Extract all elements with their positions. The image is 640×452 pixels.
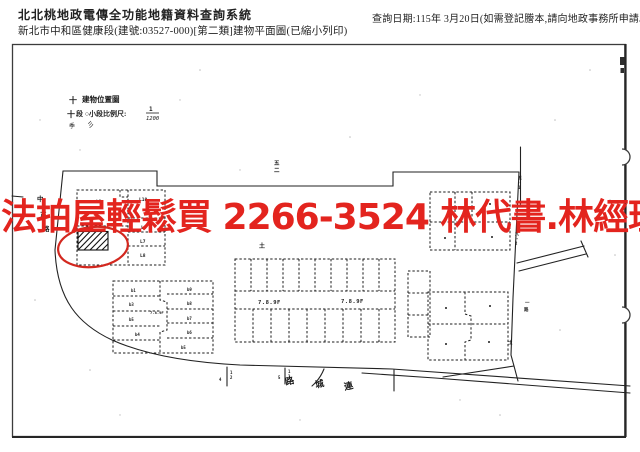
unit-label: b7	[187, 316, 192, 321]
unit-label: b3	[129, 302, 134, 307]
scale-denominator: 1200	[146, 116, 160, 122]
tiny-annotations: 五 二 土 五 - 1 九 - 2 一 路 土 1 2 4 1 2 5	[219, 160, 530, 382]
scale-numerator: 1	[149, 106, 153, 113]
punch-hole-icon	[622, 149, 630, 165]
floor-label: 7.8.9F	[258, 300, 281, 306]
pen-mark: 季	[69, 122, 75, 130]
unit-label: b5	[181, 345, 186, 350]
lane-name: 路	[524, 306, 529, 313]
unit-label: b1	[131, 288, 136, 293]
lot-number: 2	[230, 375, 233, 380]
lot-number: 5	[278, 375, 281, 380]
parcel-boundary	[12, 147, 630, 393]
road-name-char: 城	[314, 377, 325, 390]
watermark-ad-text: 法拍屋輕鬆買 2266-3524 林代書.林經理	[1, 198, 640, 238]
lot-number: 2	[515, 241, 518, 246]
lot-mark: 土	[508, 339, 513, 346]
floor-label: 7.8.9F	[150, 310, 164, 315]
lot-mark: 土	[259, 242, 265, 250]
building-cluster-left-bottom	[113, 281, 213, 353]
unit-label: b4	[135, 332, 140, 337]
pen-mark: 十	[69, 95, 77, 105]
registry-printout-page: 北北桃地政電傳全功能地籍資料查詢系統 新北市中和區健康段(建號:03527-00…	[0, 0, 640, 452]
bottom-left-unit-labels: b1 b3 b5 b4 b9 b8 b7 b6 b5 7.8.9F	[129, 287, 192, 350]
unit-label: b8	[187, 301, 192, 306]
unit-label: b5	[129, 317, 134, 322]
scale-label: 段 ○小段比例尺:	[76, 109, 126, 118]
lot-number: 4	[219, 377, 222, 382]
pen-mark: 彡	[86, 120, 95, 130]
pen-mark: 十	[67, 109, 75, 119]
building-strip-mid	[408, 271, 430, 337]
unit-label: L7	[140, 239, 146, 245]
lane-name: 一	[525, 300, 530, 305]
road-name-char: 路	[284, 374, 296, 387]
unit-label: b9	[187, 287, 192, 292]
location-map-title: 建物位置圖	[81, 94, 120, 104]
road-name-char: 連	[343, 379, 355, 392]
building-cluster-right-bottom	[428, 292, 508, 360]
unit-label: b6	[187, 330, 192, 335]
edge-stamp-marks	[620, 57, 625, 73]
floor-label: 7.8.9F	[341, 299, 364, 305]
location-map-note: 建物位置圖 段 ○小段比例尺: 1 1200 十 十 季 彡	[67, 94, 160, 130]
block-number: 五	[274, 160, 280, 167]
unit-label: L8	[140, 253, 146, 259]
block-number: 二	[274, 167, 280, 174]
scan-noise	[34, 69, 616, 421]
punch-hole-icon	[622, 307, 630, 323]
